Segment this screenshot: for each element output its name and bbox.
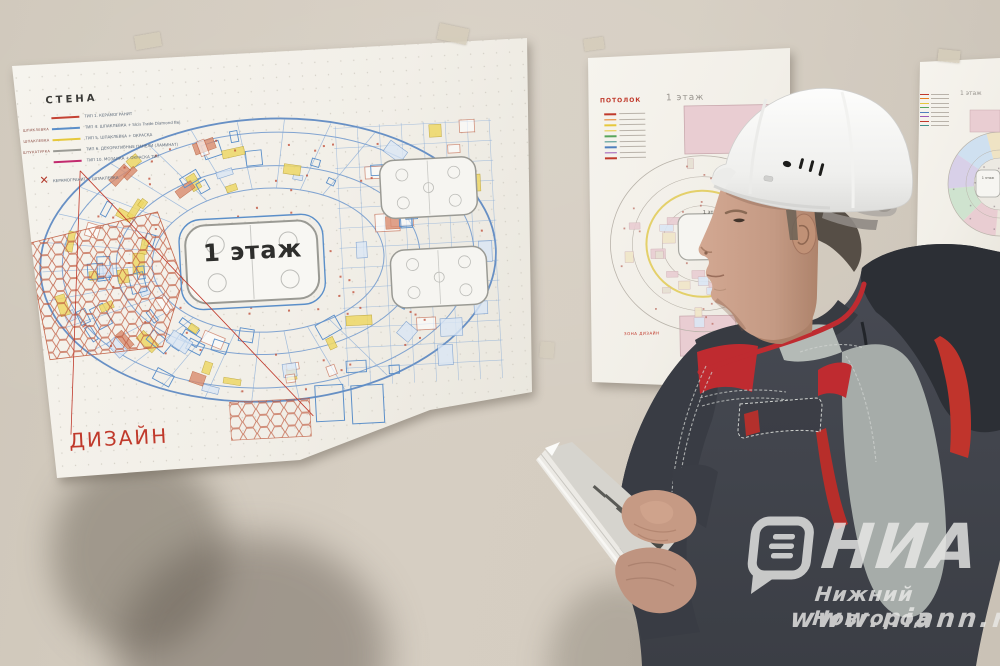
- red-accent: [818, 363, 852, 398]
- nostril: [704, 251, 707, 254]
- man-figure: [0, 0, 1000, 666]
- pocket-red-tab: [744, 410, 760, 436]
- photo-scene: СТЕНА ТИП 1. КЕРАМОГРАНИТШПАКЛЕВКАТИП 4.…: [0, 0, 1000, 666]
- helmet-clip: [764, 175, 774, 181]
- helmet-shell: [713, 88, 913, 212]
